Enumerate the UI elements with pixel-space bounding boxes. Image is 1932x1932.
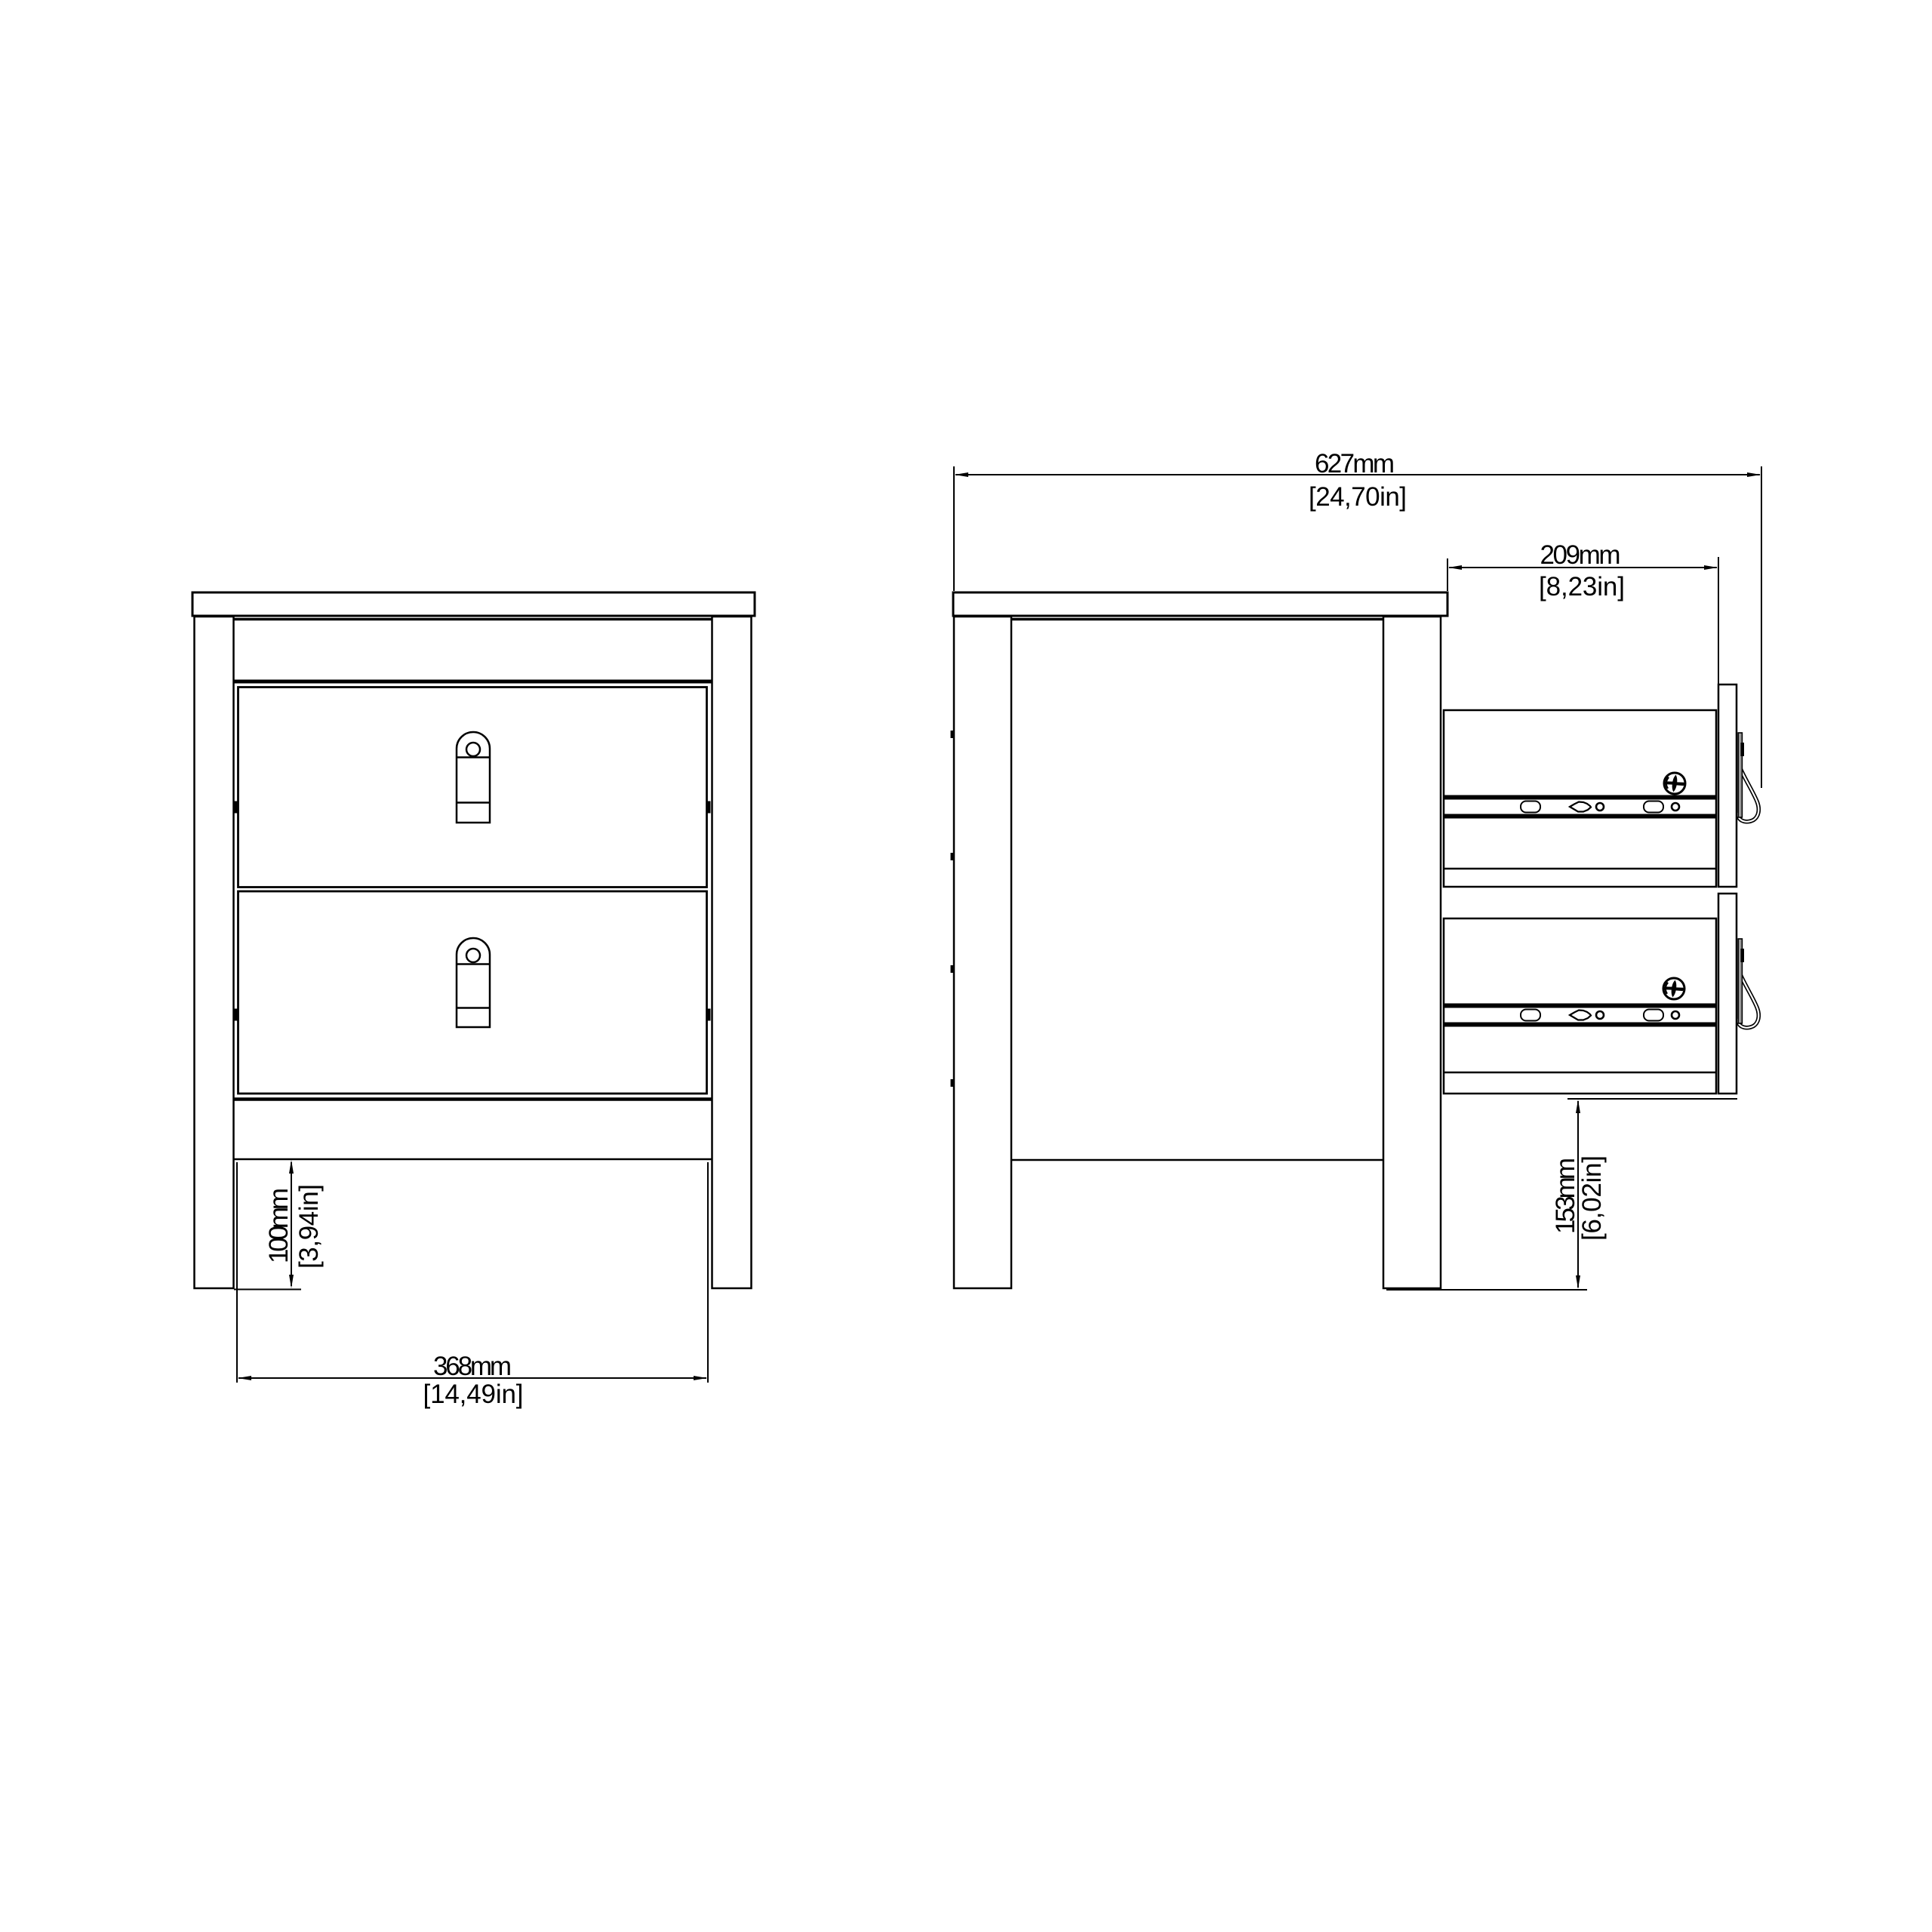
svg-text:[3,94in]: [3,94in] xyxy=(294,1184,324,1269)
svg-text:100mm: 100mm xyxy=(264,1188,294,1263)
svg-text:627mm: 627mm xyxy=(1315,449,1395,478)
svg-text:368mm: 368mm xyxy=(433,1352,512,1381)
svg-text:[6,02in]: [6,02in] xyxy=(1577,1155,1607,1241)
svg-text:153mm: 153mm xyxy=(1551,1158,1580,1234)
svg-text:209mm: 209mm xyxy=(1540,540,1621,570)
svg-text:[24,70in]: [24,70in] xyxy=(1309,482,1407,512)
svg-text:[14,49in]: [14,49in] xyxy=(423,1380,524,1409)
svg-text:[8,23in]: [8,23in] xyxy=(1539,572,1625,601)
